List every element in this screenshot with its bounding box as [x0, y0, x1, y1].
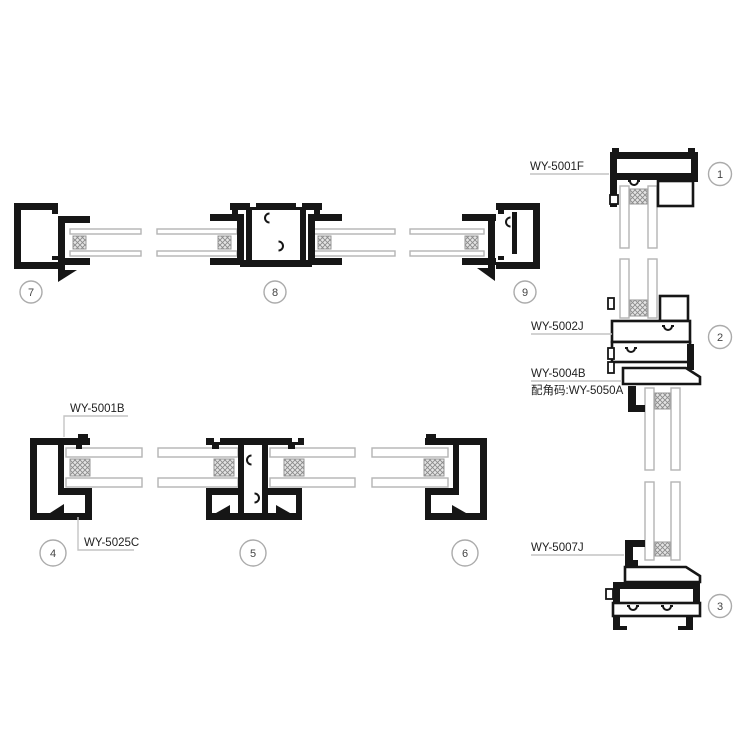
label-transom-profile: WY-5002J	[531, 321, 584, 333]
drawing-canvas: WY-5001F WY-5002J WY-5004B 配角码:WY-5050A …	[0, 0, 750, 750]
label-sill-bead-profile: WY-5007J	[531, 542, 584, 554]
callout-2: 2	[709, 326, 732, 349]
detail-8-mullion-section	[210, 203, 342, 267]
callout-7: 7	[20, 281, 42, 303]
label-transom-lower-profile: WY-5004B	[531, 368, 586, 380]
callout-5: 5	[240, 540, 266, 566]
label-frame-profile: WY-5001B	[70, 403, 125, 415]
label-corner-code: 配角码:WY-5050A	[531, 384, 624, 397]
callout-9: 9	[514, 281, 536, 303]
svg-text:2: 2	[717, 332, 723, 344]
detail-6-right-frame-section	[425, 434, 487, 520]
label-head-profile: WY-5001F	[530, 161, 584, 173]
callout-1: 1	[709, 163, 732, 186]
svg-text:8: 8	[272, 287, 278, 299]
glass-run-top-row	[70, 229, 484, 256]
svg-text:1: 1	[717, 169, 723, 181]
leader-wy5001b	[64, 416, 128, 437]
svg-text:6: 6	[462, 548, 468, 560]
svg-text:3: 3	[717, 601, 723, 613]
callout-6: 6	[452, 540, 478, 566]
label-glazing-bead-profile: WY-5025C	[84, 537, 139, 549]
profile-section-drawing: WY-5001F WY-5002J WY-5004B 配角码:WY-5050A …	[0, 0, 750, 750]
svg-text:7: 7	[28, 287, 34, 299]
svg-text:4: 4	[50, 548, 56, 560]
svg-text:5: 5	[250, 548, 256, 560]
svg-text:9: 9	[522, 287, 528, 299]
callout-8: 8	[264, 281, 286, 303]
detail-4-left-frame-section	[30, 434, 92, 520]
glass-run-bottom-row	[66, 448, 448, 487]
callout-3: 3	[709, 595, 732, 618]
callout-4: 4	[40, 540, 66, 566]
